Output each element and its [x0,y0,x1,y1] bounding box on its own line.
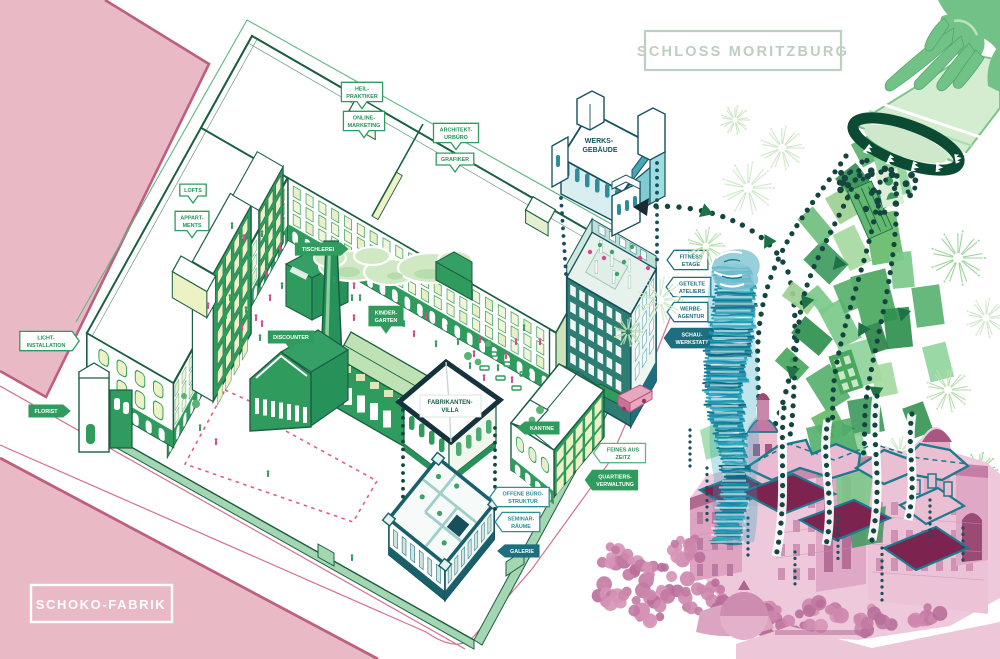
svg-text:MARKETING: MARKETING [348,123,381,129]
svg-text:OFFENE BÜRO-: OFFENE BÜRO- [502,491,543,498]
svg-text:TISCHLEREI: TISCHLEREI [302,247,335,253]
svg-text:WERKS-: WERKS- [585,138,614,145]
svg-text:RÄUME: RÄUME [511,523,531,530]
svg-text:STRUKTUR: STRUKTUR [508,499,538,505]
svg-text:AGENTUR: AGENTUR [678,314,705,320]
svg-text:URBÜRO: URBÜRO [444,134,468,141]
svg-text:KINDER-: KINDER- [375,311,398,317]
svg-text:QUARTIERS-: QUARTIERS- [598,475,632,481]
svg-text:VILLA: VILLA [441,408,459,414]
svg-text:GEBÄUDE: GEBÄUDE [582,146,617,154]
svg-text:SCHAU-: SCHAU- [682,333,703,339]
svg-text:GALERIE: GALERIE [510,549,534,555]
svg-text:LICHT-: LICHT- [37,336,55,342]
svg-text:MENTS: MENTS [183,223,202,229]
svg-text:SCHOKO-FABRIK: SCHOKO-FABRIK [36,597,167,612]
svg-text:ONLINE-: ONLINE- [353,116,375,122]
svg-text:WERKSTATT: WERKSTATT [675,340,709,346]
svg-text:GRAFIKER: GRAFIKER [441,157,469,163]
svg-text:PRAKTIKER: PRAKTIKER [346,94,378,100]
svg-text:SCHLOSS MORITZBURG: SCHLOSS MORITZBURG [637,44,849,60]
svg-text:ZEITZ: ZEITZ [616,455,632,461]
svg-text:GARTEN: GARTEN [375,318,398,324]
svg-text:SEMINAR-: SEMINAR- [508,517,535,523]
svg-text:HEIL-: HEIL- [355,87,369,93]
svg-text:FEINES AUS: FEINES AUS [607,448,640,454]
svg-text:ETAGE: ETAGE [682,262,701,268]
svg-text:GETEILTE: GETEILTE [679,282,705,288]
svg-text:KANTINE: KANTINE [530,426,554,432]
svg-text:ATELIERS: ATELIERS [679,289,706,295]
svg-text:FLORIST: FLORIST [34,409,58,415]
svg-text:ARCHITEKT-: ARCHITEKT- [440,128,473,134]
svg-text:VERWALTUNG: VERWALTUNG [596,482,634,488]
svg-text:APPART-: APPART- [180,216,203,222]
svg-text:LOFTS: LOFTS [184,188,202,194]
svg-text:WERBE-: WERBE- [680,307,702,313]
svg-text:FABRIKANTEN-: FABRIKANTEN- [428,400,473,406]
svg-text:DISCOUNTER: DISCOUNTER [273,335,309,341]
svg-text:INSTALLATION: INSTALLATION [27,343,66,349]
